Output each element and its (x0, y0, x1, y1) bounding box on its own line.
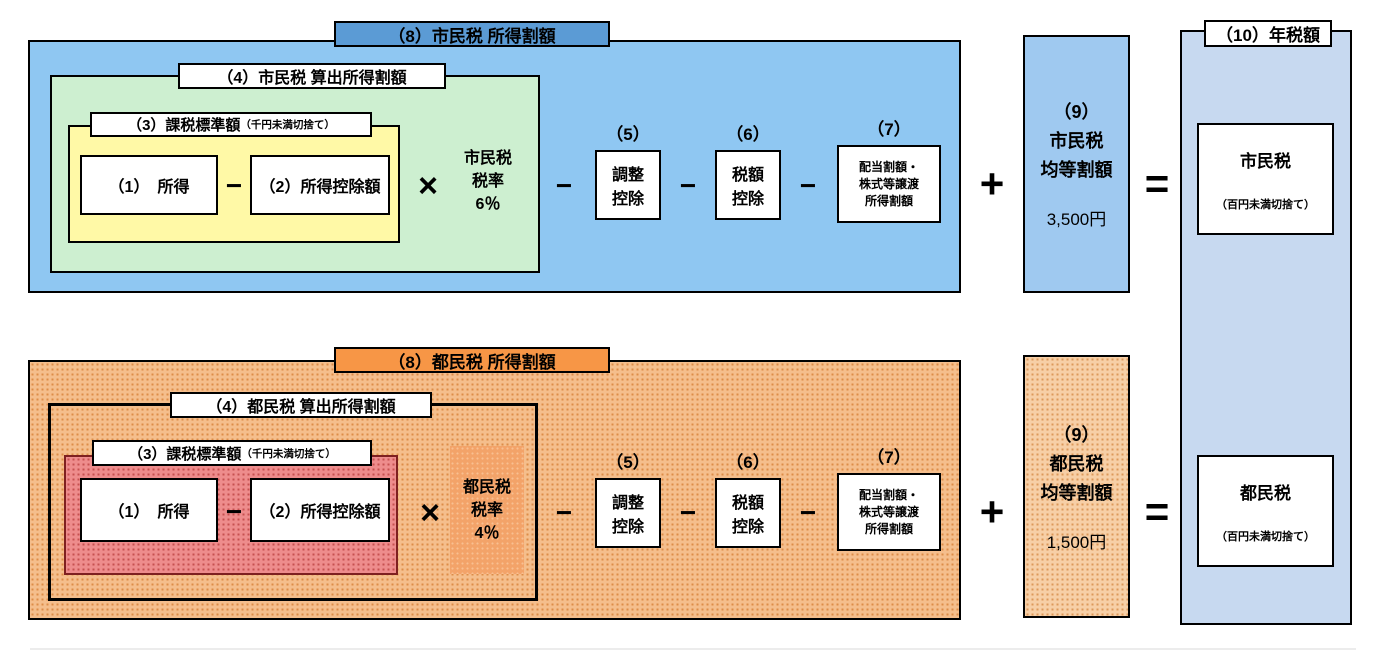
metro-taxbase-title-main: （3）課税標準額 (128, 443, 241, 464)
city-times-operator: × (418, 169, 438, 203)
metro-taxbase-title: （3）課税標準額（千円未満切捨て） (92, 440, 372, 466)
metro-section-title: （8）都民税 所得割額 (334, 347, 610, 373)
annual-city-label: 市民税 (1240, 147, 1291, 172)
metro-rate-line3: 4％ (475, 522, 500, 545)
metro-percapita-amount: 1,500円 (1047, 528, 1107, 553)
city-minus-credit: − (680, 172, 696, 200)
metro-rate-line1: 都民税 (463, 476, 511, 499)
city-income-box: （1） 所得 (80, 155, 218, 215)
metro-plus-operator: + (980, 491, 1005, 533)
city-credit-box: 税額 控除 (715, 150, 781, 220)
metro-times-operator: × (420, 496, 440, 530)
metro-taxbase-title-note: （千円未満切捨て） (241, 446, 336, 461)
metro-minus-income-deduction: − (226, 498, 242, 526)
city-percapita-line1: 市民税 (1050, 127, 1104, 156)
city-percapita-amount: 3,500円 (1047, 205, 1107, 230)
city-minus-income-deduction: − (226, 172, 242, 200)
tax-calculation-diagram: （8）市民税 所得割額 （4）市民税 算出所得割額 （3）課税標準額（千円未満切… (0, 0, 1380, 654)
city-adjust-number: （5） (606, 120, 649, 145)
annual-metro-result-box: 都民税 （百円未満切捨て） (1197, 455, 1334, 567)
metro-adjust-line1: 調整 (612, 489, 644, 513)
city-section-title: （8）市民税 所得割額 (334, 21, 610, 47)
metro-dividend-line3: 所得割額 (865, 521, 913, 538)
metro-rate-line2: 税率 (471, 499, 503, 522)
city-dividend-box: 配当割額・ 株式等譲渡 所得割額 (837, 145, 941, 223)
city-adjust-line1: 調整 (612, 161, 644, 185)
metro-dividend-line1: 配当割額・ (859, 487, 919, 504)
city-plus-operator: + (980, 163, 1005, 205)
city-percapita-line2: 均等割額 (1041, 156, 1113, 185)
metro-minus-dividend: − (800, 499, 816, 527)
city-dividend-number: （7） (867, 115, 910, 140)
city-dividend-line3: 所得割額 (865, 193, 913, 210)
annual-tax-title: （10）年税額 (1204, 20, 1332, 47)
city-rate-line2: 税率 (448, 170, 528, 193)
city-taxbase-title-main: （3）課税標準額 (127, 114, 240, 135)
city-credit-line1: 税額 (732, 161, 764, 185)
city-taxbase-title: （3）課税標準額（千円未満切捨て） (90, 112, 372, 137)
metro-percapita-box: （9） 都民税 均等割額 1,500円 (1023, 355, 1130, 618)
city-credit-line2: 控除 (732, 185, 764, 209)
city-tax-rate: 市民税 税率 6％ (448, 147, 528, 216)
metro-dividend-line2: 株式等譲渡 (859, 504, 919, 521)
annual-city-note: （百円未満切捨て） (1216, 196, 1315, 212)
metro-credit-line2: 控除 (732, 513, 764, 537)
metro-percapita-line2: 均等割額 (1041, 479, 1113, 508)
metro-deduction-box: （2）所得控除額 (250, 478, 390, 542)
city-adjust-line2: 控除 (612, 185, 644, 209)
metro-tax-rate: 都民税 税率 4％ (450, 446, 524, 574)
metro-credit-line1: 税額 (732, 489, 764, 513)
city-taxbase-title-note: （千円未満切捨て） (240, 117, 335, 132)
metro-credit-box: 税額 控除 (715, 478, 781, 548)
annual-city-result-box: 市民税 （百円未満切捨て） (1197, 123, 1334, 235)
metro-minus-adjust: − (556, 499, 572, 527)
metro-credit-number: （6） (726, 448, 769, 473)
page-bottom-divider (30, 648, 1356, 650)
metro-equals-operator: = (1145, 491, 1170, 533)
city-credit-number: （6） (726, 120, 769, 145)
city-equals-operator: = (1145, 163, 1170, 205)
city-calc-title: （4）市民税 算出所得割額 (178, 63, 446, 89)
annual-metro-label: 都民税 (1240, 479, 1291, 504)
city-percapita-box: （9） 市民税 均等割額 3,500円 (1023, 35, 1130, 293)
city-adjust-box: 調整 控除 (595, 150, 661, 220)
city-minus-adjust: − (556, 172, 572, 200)
metro-adjust-line2: 控除 (612, 513, 644, 537)
metro-adjust-box: 調整 控除 (595, 478, 661, 548)
metro-minus-credit: − (680, 499, 696, 527)
city-dividend-line1: 配当割額・ (859, 159, 919, 176)
city-rate-line3: 6％ (448, 193, 528, 216)
metro-dividend-box: 配当割額・ 株式等譲渡 所得割額 (837, 473, 941, 551)
city-deduction-box: （2）所得控除額 (250, 155, 390, 215)
city-percapita-number: （9） (1053, 98, 1099, 127)
metro-dividend-number: （7） (867, 443, 910, 468)
metro-income-box: （1） 所得 (80, 478, 218, 542)
annual-metro-note: （百円未満切捨て） (1216, 528, 1315, 544)
city-rate-line1: 市民税 (448, 147, 528, 170)
city-dividend-line2: 株式等譲渡 (859, 176, 919, 193)
metro-percapita-number: （9） (1053, 421, 1099, 450)
metro-percapita-line1: 都民税 (1050, 450, 1104, 479)
metro-adjust-number: （5） (606, 448, 649, 473)
city-minus-dividend: − (800, 172, 816, 200)
metro-calc-title: （4）都民税 算出所得割額 (170, 392, 432, 418)
